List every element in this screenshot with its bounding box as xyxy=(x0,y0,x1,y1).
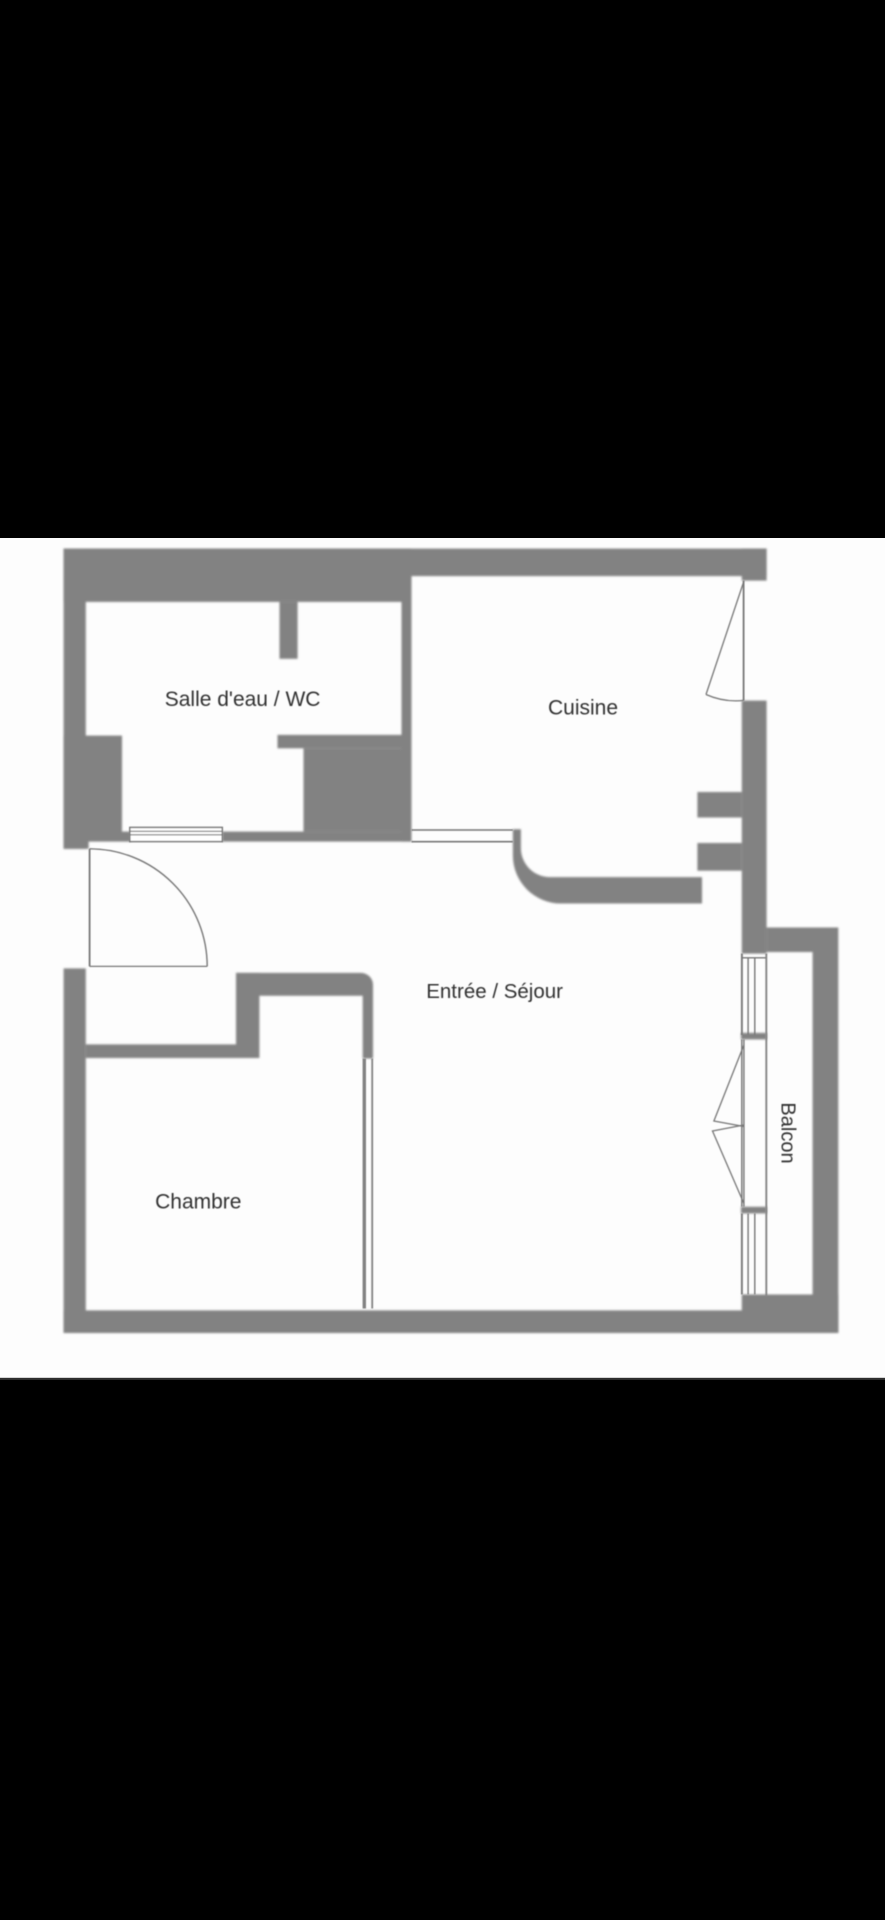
svg-text:Salle d'eau / WC: Salle d'eau / WC xyxy=(165,688,321,711)
svg-text:Balcon: Balcon xyxy=(777,1102,799,1163)
svg-text:Entrée / Séjour: Entrée / Séjour xyxy=(426,980,563,1003)
svg-text:Cuisine: Cuisine xyxy=(548,697,618,720)
svg-text:Chambre: Chambre xyxy=(155,1190,241,1213)
